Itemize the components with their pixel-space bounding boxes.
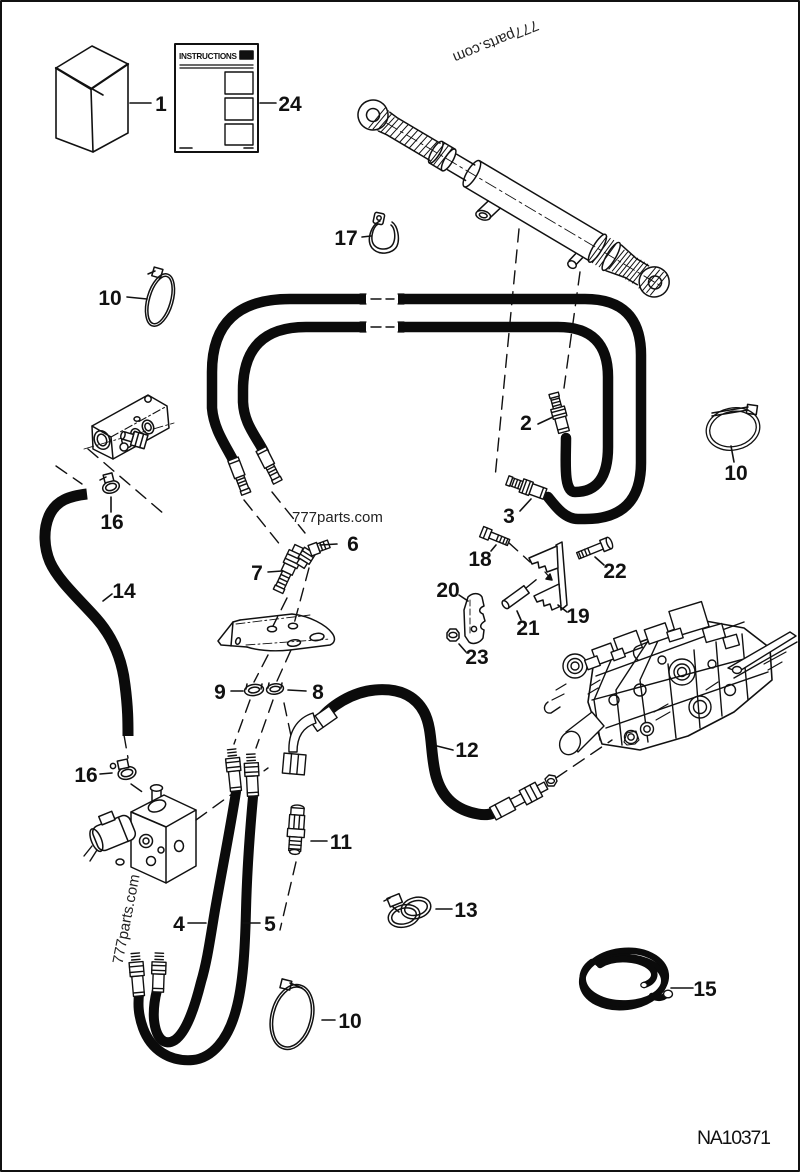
- svg-text:19: 19: [566, 605, 589, 628]
- svg-text:NA10371: NA10371: [697, 1127, 771, 1149]
- svg-text:9: 9: [214, 681, 226, 704]
- svg-text:23: 23: [465, 646, 488, 669]
- svg-text:24: 24: [278, 93, 302, 116]
- svg-text:11: 11: [330, 831, 353, 854]
- svg-text:7: 7: [251, 562, 263, 585]
- svg-text:3: 3: [503, 505, 515, 528]
- svg-text:6: 6: [347, 533, 359, 556]
- svg-text:13: 13: [454, 899, 477, 922]
- svg-text:2: 2: [520, 412, 532, 435]
- svg-text:10: 10: [724, 462, 747, 485]
- svg-text:10: 10: [98, 287, 121, 310]
- svg-text:22: 22: [603, 560, 626, 583]
- svg-text:INSTRUCTIONS: INSTRUCTIONS: [179, 52, 238, 61]
- svg-text:12: 12: [455, 739, 478, 762]
- svg-text:10: 10: [338, 1010, 361, 1033]
- svg-text:5: 5: [264, 913, 276, 936]
- svg-text:16: 16: [74, 764, 97, 787]
- svg-text:16: 16: [100, 511, 123, 534]
- svg-text:4: 4: [173, 913, 185, 936]
- svg-text:8: 8: [312, 681, 324, 704]
- svg-text:1: 1: [155, 93, 167, 116]
- svg-text:17: 17: [334, 227, 357, 250]
- svg-text:18: 18: [468, 548, 492, 571]
- svg-text:14: 14: [112, 580, 136, 603]
- svg-text:21: 21: [516, 617, 540, 640]
- svg-text:777parts.com: 777parts.com: [292, 509, 383, 526]
- svg-text:15: 15: [693, 978, 717, 1001]
- svg-text:20: 20: [436, 579, 459, 602]
